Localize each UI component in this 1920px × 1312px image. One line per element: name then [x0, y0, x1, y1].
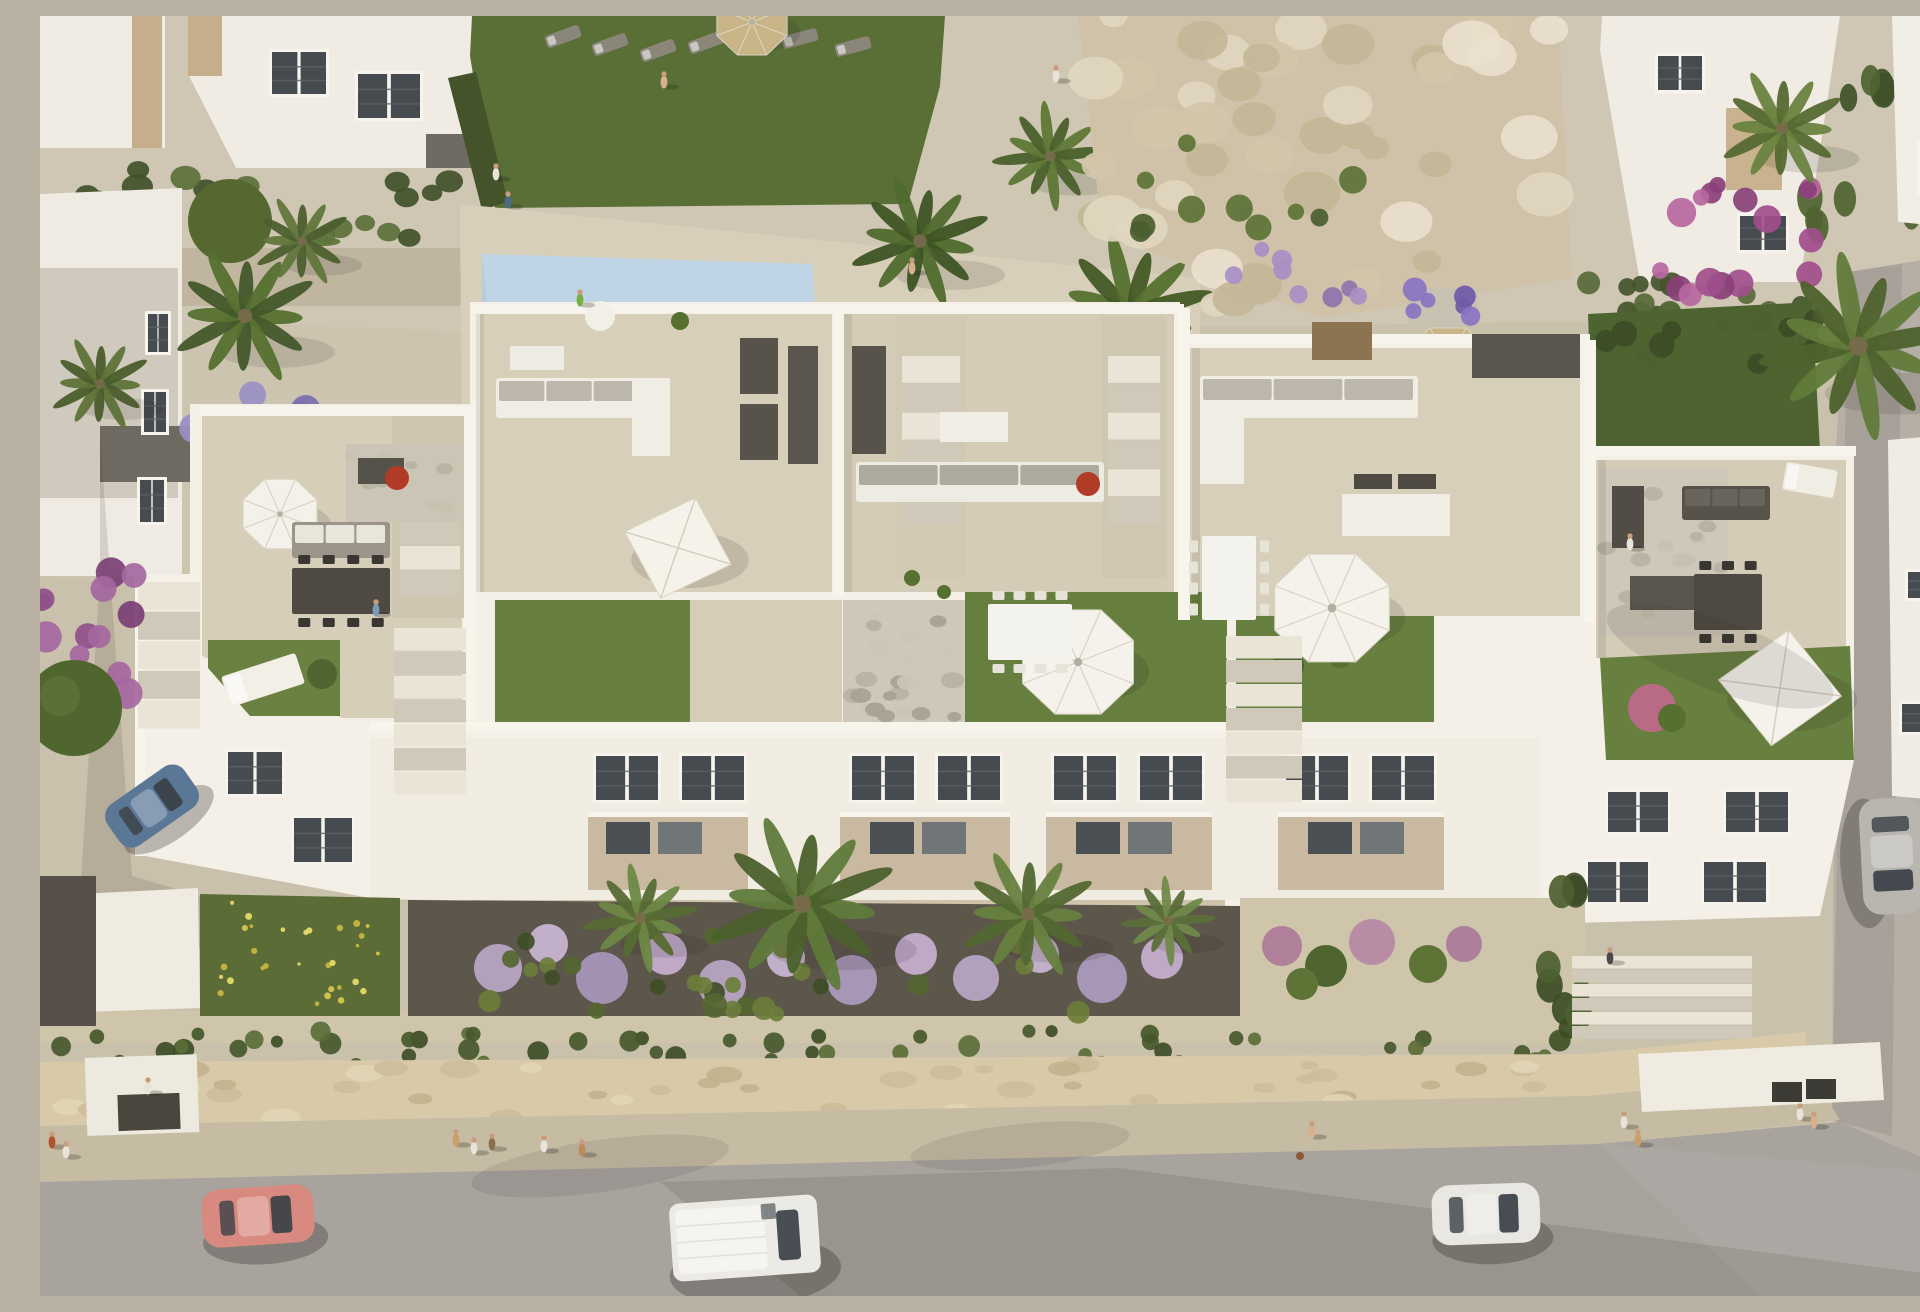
villa-far-left-stone [132, 16, 162, 148]
roof-garden-lawn [495, 600, 690, 722]
hydrangea-bush [1262, 926, 1302, 966]
canopy-panel [1772, 1082, 1802, 1102]
aerial-render [40, 16, 1920, 1296]
canopy-panel [1806, 1079, 1836, 1099]
lavender-ball [576, 952, 628, 1004]
side-table [1398, 474, 1436, 489]
chaise [740, 338, 778, 394]
balcony-door [1308, 822, 1352, 854]
villa-window [1655, 53, 1705, 93]
scene-root [40, 16, 1920, 1296]
wall-shadow [1598, 460, 1606, 658]
parapet-wall [834, 308, 844, 596]
lavender-ball [474, 944, 522, 992]
balcony-rail [1046, 812, 1212, 817]
sofa-corner [1200, 414, 1244, 484]
facade-window [225, 749, 285, 797]
facade-window [593, 753, 661, 803]
facade-window [679, 753, 747, 803]
external-stairs [138, 582, 200, 729]
villa-top-left-stone-a [188, 16, 222, 76]
balcony-door [870, 822, 914, 854]
facade-window [849, 753, 917, 803]
balcony-door [606, 822, 650, 854]
red-flower-pot [1076, 472, 1100, 496]
outdoor-sofa [1682, 486, 1770, 520]
parapet-wall [1584, 340, 1596, 622]
villa-window [269, 49, 329, 97]
red-flower-pot [385, 466, 409, 490]
planter-pot [904, 570, 920, 586]
coffee-table [510, 346, 564, 370]
skylight-window [1605, 789, 1671, 835]
balcony-rail [840, 812, 1010, 817]
entrance-canopy [1638, 1042, 1884, 1112]
balcony-door [922, 822, 966, 854]
facade-window [1369, 753, 1437, 803]
balcony-rail [588, 812, 748, 817]
roof-garden-tile [690, 600, 842, 724]
skylight-window [1723, 789, 1791, 835]
hydrangea-bush [1446, 926, 1482, 962]
parapet-wall [200, 406, 468, 416]
sideboard [788, 346, 818, 464]
wall-shadow [844, 314, 852, 592]
facade-window [1137, 753, 1205, 803]
lavender-ball [953, 955, 999, 1001]
skylight-window [1585, 859, 1651, 905]
balcony-door [1360, 822, 1404, 854]
hydrangea-bush [1286, 968, 1318, 1000]
balcony-door [658, 822, 702, 854]
bush-greens [1658, 704, 1686, 732]
left-building-window [137, 477, 167, 525]
balcony-door [1076, 822, 1120, 854]
left-terrace-wall [80, 888, 200, 1012]
white-bench [1342, 494, 1450, 536]
left-tree-light [40, 676, 80, 716]
balcony-rail [1278, 812, 1444, 817]
right-building-window [1905, 569, 1920, 601]
wall-shadow [1192, 348, 1200, 616]
court-tree [188, 179, 272, 263]
balcony-door [1128, 822, 1172, 854]
right-mid-building [1888, 434, 1920, 802]
dark-sofa [852, 346, 886, 454]
external-stairs [1226, 636, 1302, 803]
outdoor-sofa [1200, 376, 1418, 418]
white-van [665, 1193, 844, 1296]
external-stairs [394, 628, 466, 795]
facade-window [935, 753, 1003, 803]
wildflower-lawn [200, 894, 400, 1016]
parapet-wall [1588, 446, 1856, 456]
garage-door-opening [117, 1093, 180, 1131]
parapet-wall [1178, 308, 1190, 620]
right-building-window [1899, 701, 1920, 735]
facade-window [1051, 753, 1119, 803]
planter-pot [937, 585, 951, 599]
hydrangea-bush [1349, 919, 1395, 965]
facade-window [291, 815, 355, 865]
left-building-window [145, 311, 171, 355]
wood-coffee-table [1312, 322, 1372, 360]
villa-window [355, 71, 423, 121]
outdoor-sofa [292, 522, 390, 558]
aerial-render-canvas [40, 16, 1920, 1296]
left-soil-bed [40, 876, 96, 1026]
sofa-corner [632, 378, 670, 456]
hydrangea-bush [1409, 945, 1447, 983]
coffee-table [940, 412, 1008, 442]
outdoor-sofa [856, 462, 1104, 502]
storage-box [1612, 486, 1644, 548]
parapet-wall [370, 722, 1230, 731]
white-car [1431, 1182, 1555, 1267]
chaise [740, 404, 778, 460]
planter-pot [671, 312, 689, 330]
ac-unit [1472, 334, 1580, 378]
skylight-window [1701, 859, 1769, 905]
side-table [1354, 474, 1392, 489]
dog [1296, 1152, 1304, 1160]
outdoor-sofa [496, 378, 644, 418]
terrace-tree [307, 659, 337, 689]
wall-shadow [476, 314, 484, 592]
